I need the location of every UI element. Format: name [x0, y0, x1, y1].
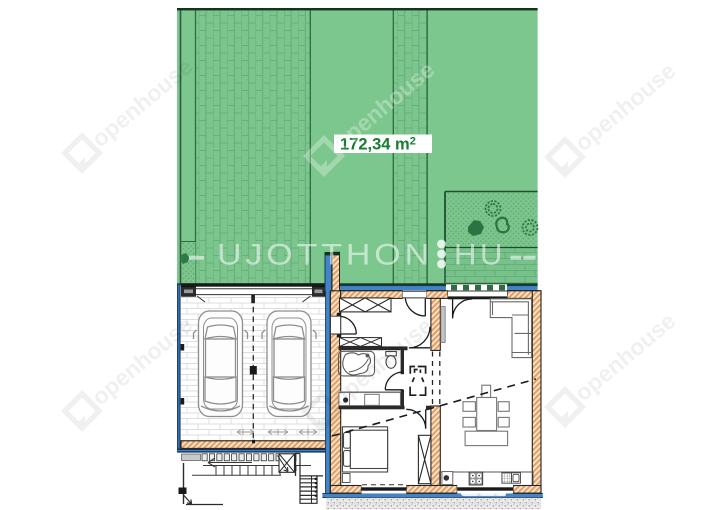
- svg-text:UJOTTHON: UJOTTHON: [217, 239, 433, 272]
- svg-text:HU: HU: [454, 239, 506, 272]
